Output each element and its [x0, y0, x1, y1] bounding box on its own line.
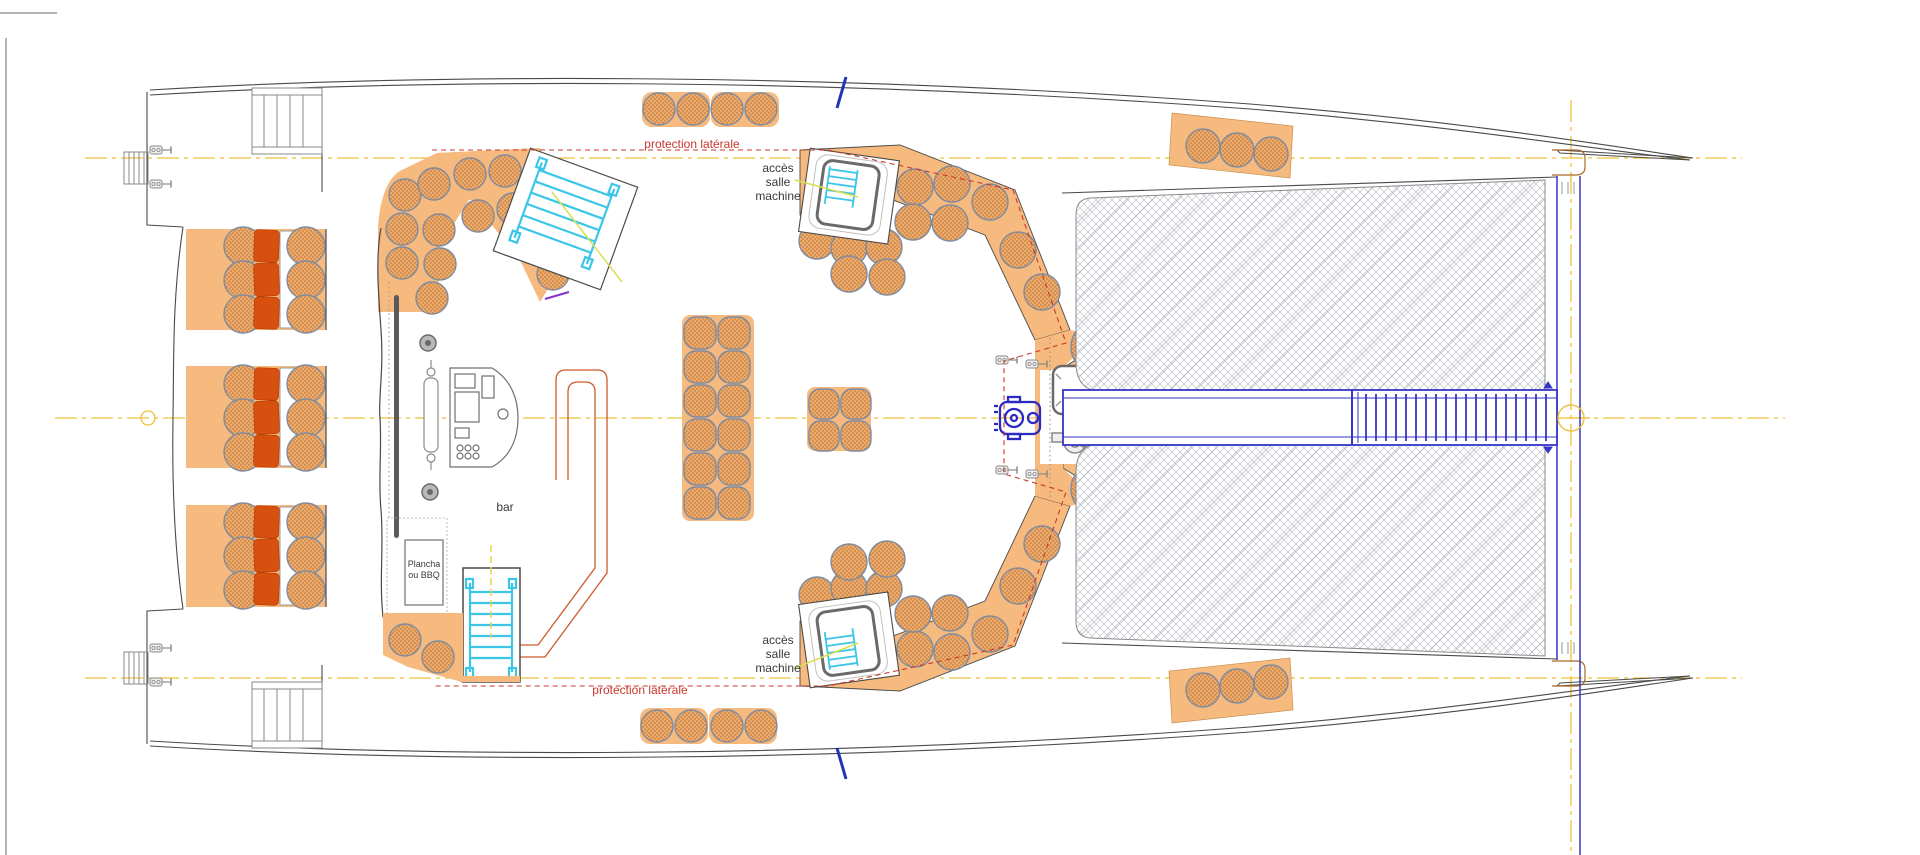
acces-label-line3: machine — [755, 189, 801, 203]
side-bench-bottom — [640, 708, 777, 744]
accent-purple-line — [545, 292, 569, 299]
drawing-frame — [0, 13, 57, 855]
foredeck-sunpad-bottom — [1169, 658, 1293, 723]
deck-plan-canvas: protection latérale protection latérale … — [0, 0, 1920, 855]
acces-label-line3: machine — [755, 661, 801, 675]
cleat-icon — [996, 356, 1017, 364]
lounge-module — [186, 503, 326, 609]
acces-salle-machine-label-bottom: accès — [762, 633, 793, 647]
lounge-module — [186, 365, 326, 471]
mast-track — [394, 295, 399, 538]
cleat-icon — [996, 466, 1017, 474]
cleat-icon — [150, 644, 171, 652]
galley-console-icon — [450, 368, 518, 467]
galley-area — [383, 295, 607, 682]
deck-fitting — [424, 360, 438, 470]
plancha-label: Plancha — [408, 559, 441, 569]
protection-laterale-label-bottom: protection latérale — [592, 683, 688, 697]
acces-label-line2: salle — [766, 647, 791, 661]
cleat-icon — [150, 146, 171, 154]
bar-label: bar — [496, 500, 513, 514]
gangway — [1063, 382, 1557, 453]
trampoline-bottom — [1076, 443, 1545, 656]
swim-ladder-icon — [124, 652, 148, 684]
foredeck-sunpad-top — [1169, 113, 1293, 178]
stern-stairs-icon — [252, 88, 322, 154]
hull-stairs-box — [463, 545, 520, 682]
protection-laterale-label-top: protection latérale — [644, 137, 740, 151]
plancha-label-line2: ou BBQ — [408, 570, 440, 580]
engine-hatch-bottom — [799, 592, 900, 688]
backrest — [253, 230, 279, 330]
lounge-module — [186, 227, 326, 333]
swim-ladder-icon — [124, 152, 148, 184]
trampoline-top — [1076, 180, 1545, 392]
forward-crossbeam — [1557, 176, 1580, 855]
side-bench-top — [642, 92, 779, 127]
stern-stairs-icon — [252, 682, 322, 748]
cleat-icon — [150, 180, 171, 188]
acces-salle-machine-label-top: accès — [762, 161, 793, 175]
acces-label-line2: salle — [766, 175, 791, 189]
cleat-icon — [150, 678, 171, 686]
deck-plan-drawing: protection latérale protection latérale … — [0, 0, 1920, 855]
stern-lounge-modules — [186, 227, 326, 609]
